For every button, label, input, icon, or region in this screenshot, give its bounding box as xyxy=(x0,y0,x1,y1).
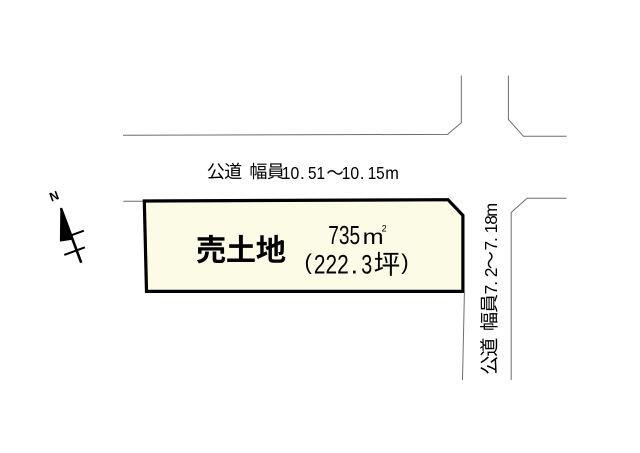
svg-text:N: N xyxy=(48,188,61,204)
svg-text:.: . xyxy=(481,281,501,286)
svg-text:222: 222 xyxy=(314,249,349,279)
svg-text:m: m xyxy=(481,203,501,217)
svg-text:.: . xyxy=(351,249,358,279)
svg-text:): ) xyxy=(401,249,408,274)
svg-text:3: 3 xyxy=(361,249,372,279)
svg-text:.: . xyxy=(481,237,501,242)
svg-text:2: 2 xyxy=(481,268,501,278)
svg-text:.: . xyxy=(300,163,305,183)
svg-text:(: ( xyxy=(305,249,313,274)
svg-text:10: 10 xyxy=(282,163,300,183)
svg-text:735: 735 xyxy=(328,220,360,250)
svg-text:.: . xyxy=(360,163,365,183)
svg-text:m: m xyxy=(385,163,399,183)
svg-text:m: m xyxy=(363,225,384,249)
svg-text:51: 51 xyxy=(308,163,325,183)
svg-text:2: 2 xyxy=(382,224,387,234)
svg-text:10: 10 xyxy=(342,163,360,183)
svg-text:15: 15 xyxy=(368,163,385,183)
